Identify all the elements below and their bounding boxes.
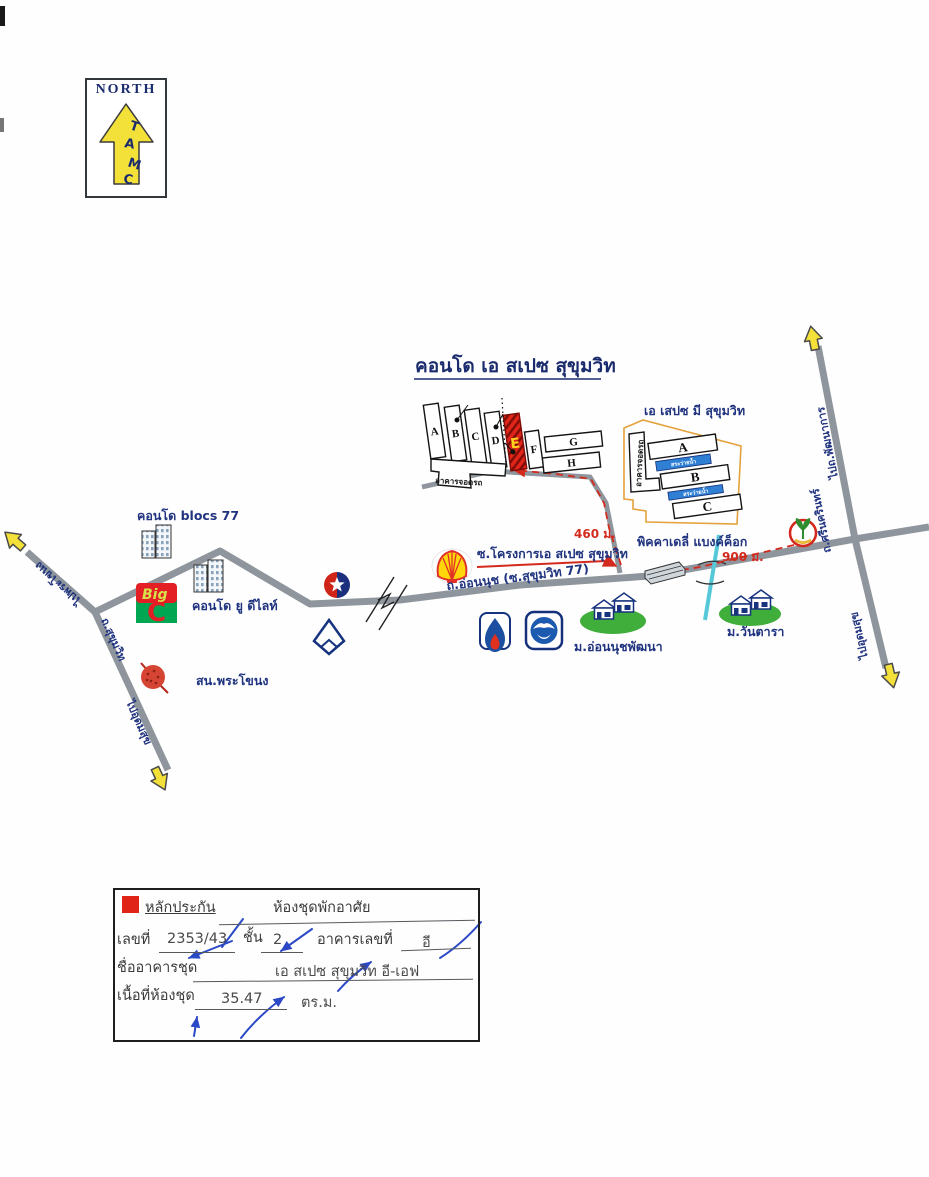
legend-red-square (122, 896, 139, 913)
police-label: สน.พระโขนง (196, 673, 269, 688)
udelight-building-icon (194, 560, 223, 592)
building-d-label: D (491, 434, 501, 447)
kasikorn-logo (790, 518, 816, 546)
building-no-value: อี (422, 931, 431, 954)
police-station-icon (141, 663, 168, 693)
tamc-letter-c: C (122, 172, 134, 188)
to-phrakhanong-label: ไปพระโขนง (32, 559, 86, 609)
north-compass-box: NORTH T A M C (85, 78, 167, 198)
legend-label: หลักประกัน (145, 896, 216, 919)
udelight-label: คอนโด ยู ดีไลท์ (192, 598, 278, 614)
ptt-logo (480, 613, 510, 652)
field-line (401, 948, 471, 951)
building-c-label: C (471, 430, 481, 443)
bigc-c-text: C (147, 598, 166, 628)
bigc-logo: Big C (136, 583, 177, 628)
bangchak-logo (314, 620, 344, 654)
village-onnutpattana-label: ม.อ่อนนุชพัฒนา (574, 639, 663, 655)
scanned-map-document: คอนโด เอ สเปซ สุขุมวิท A B C D E F G H อ… (0, 0, 929, 1177)
area-value: 35.47 (221, 991, 263, 1007)
village-onnutpattana-icon (580, 593, 646, 634)
building-no-label: อาคารเลขที่ (317, 928, 393, 951)
blocs77-building-icon (142, 525, 171, 558)
area-label: เนื้อที่ห้องชุด (117, 984, 195, 1007)
building-g-label: G (569, 436, 579, 449)
soi-project-label: ซ.โครงการเอ สเปซ สุขุมวิท (477, 546, 628, 562)
number-label: เลขที่ (117, 928, 150, 951)
floor-value: 2 (273, 932, 282, 948)
building-h-label: H (567, 457, 577, 470)
number-value: 2353/43 (167, 931, 227, 947)
direction-arrow-northwest (0, 525, 29, 554)
collateral-form: หลักประกัน ห้องชุดพักอาศัย เลขที่ 2353/4… (113, 888, 480, 1042)
right-buildings: A สระว่ายน้ำ B สระว่ายน้ำ C (648, 432, 742, 521)
distance-900m: 900 ม. (722, 550, 764, 564)
field-line (261, 952, 303, 953)
right-condo-complex: เอ เสปซ มี สุขุมวิท อาคารจอดรถ A สระว่าย… (624, 403, 745, 524)
caltex-logo (324, 572, 350, 598)
building-a-label: A (430, 425, 440, 438)
village-wantara-label: ม.วันตารา (727, 624, 784, 639)
to-udomsuk-right-label: ไปอุดมสุข (847, 611, 873, 663)
to-udomsuk-left-label: ไปอุดมสุข (122, 696, 156, 748)
north-arrow: T A M C (87, 98, 165, 192)
unit-type-label: ห้องชุดพักอาศัย (273, 896, 371, 919)
field-line (159, 952, 235, 953)
blocs77-label: คอนโด blocs 77 (137, 508, 239, 523)
floor-label: ชั้น (243, 926, 263, 949)
piccadilly-label: พิคคาเดลี่ แบงค์ค็อก (637, 533, 747, 549)
field-line (195, 1009, 287, 1010)
map-title: คอนโด เอ สเปซ สุขุมวิท (415, 354, 616, 378)
field-line (219, 920, 475, 925)
right-complex-title: เอ เสปซ มี สุขุมวิท (644, 403, 745, 419)
north-label: NORTH (87, 82, 165, 98)
distance-460m: 460 ม. (574, 527, 616, 541)
building-name-label: ชื่ออาคารชุด (117, 956, 197, 979)
area-unit: ตร.ม. (301, 991, 337, 1014)
village-wantara-icon (719, 590, 781, 626)
bank-bird-logo (526, 612, 562, 649)
piccadilly-building-icon (645, 562, 685, 584)
